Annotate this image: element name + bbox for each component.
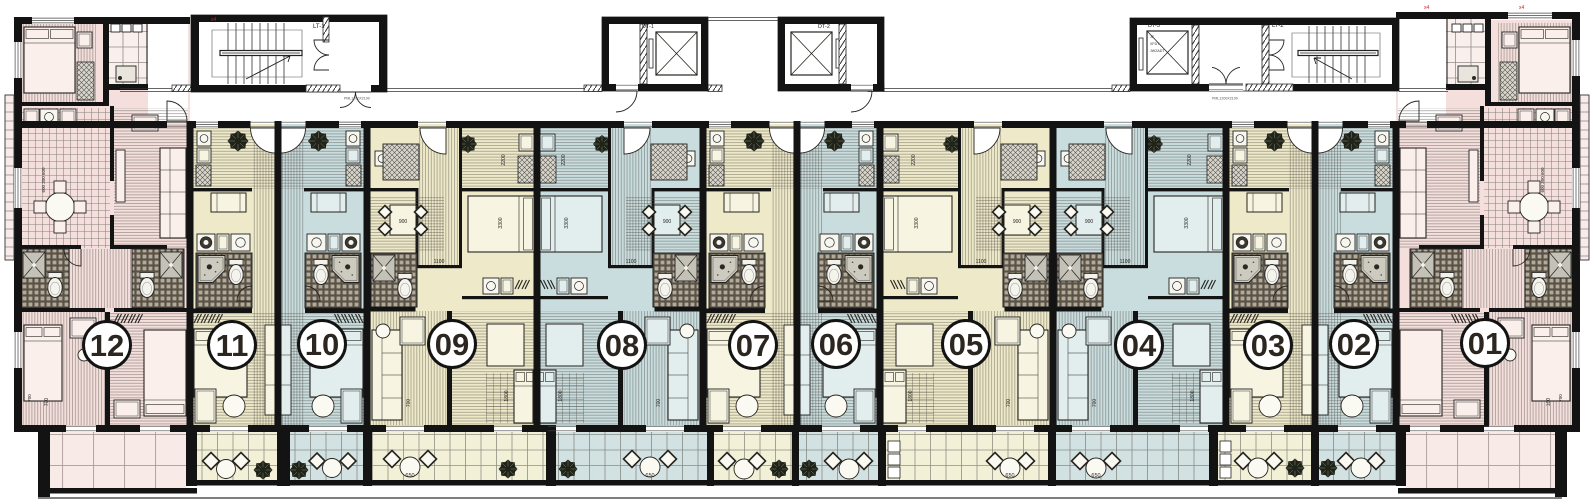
svg-text:650: 650: [1005, 473, 1014, 479]
svg-text:1100: 1100: [976, 259, 987, 265]
svg-text:LT-1: LT-1: [313, 24, 325, 30]
svg-text:x4: x4: [211, 17, 217, 23]
svg-text:1100: 1100: [626, 259, 637, 265]
svg-text:10: 10: [305, 327, 339, 362]
svg-text:DT-1: DT-1: [642, 24, 654, 30]
svg-text:1800: 1800: [1190, 390, 1196, 401]
svg-text:2200: 2200: [911, 154, 917, 165]
svg-text:x4: x4: [1519, 5, 1525, 11]
svg-text:XFDT: XFDT: [1150, 42, 1160, 46]
svg-text:700: 700: [27, 394, 32, 402]
svg-text:JWZADT: JWZADT: [1150, 49, 1165, 53]
svg-text:LT-2: LT-2: [1272, 23, 1284, 29]
svg-text:1800: 1800: [558, 390, 564, 401]
svg-text:3300: 3300: [498, 217, 504, 228]
svg-text:PML1200X2100: PML1200X2100: [1212, 97, 1238, 101]
svg-text:650: 650: [1091, 473, 1100, 479]
svg-text:700: 700: [1544, 398, 1550, 407]
svg-text:900: 900: [1085, 219, 1094, 225]
svg-text:05: 05: [949, 327, 983, 362]
svg-text:DT-2: DT-2: [818, 24, 830, 30]
svg-text:1100: 1100: [434, 259, 445, 265]
svg-text:700: 700: [1558, 394, 1563, 402]
svg-text:1800: 1800: [504, 390, 510, 401]
svg-text:700: 700: [1092, 399, 1098, 408]
svg-text:01: 01: [1468, 326, 1502, 361]
svg-text:x4: x4: [1424, 5, 1430, 11]
svg-text:02: 02: [1337, 327, 1371, 362]
svg-text:700: 700: [406, 399, 412, 408]
svg-text:900: 900: [1013, 219, 1022, 225]
svg-text:3300: 3300: [914, 217, 920, 228]
svg-text:900: 900: [663, 219, 672, 225]
svg-text:600 300 600: 600 300 600: [41, 167, 46, 193]
svg-text:700: 700: [44, 398, 50, 407]
svg-text:06: 06: [819, 327, 853, 362]
svg-text:1100: 1100: [1120, 259, 1131, 265]
svg-text:600 300 600: 600 300 600: [1540, 167, 1545, 193]
svg-text:650: 650: [405, 473, 414, 479]
svg-text:650: 650: [645, 473, 654, 479]
svg-text:700: 700: [656, 399, 662, 408]
svg-text:04: 04: [1122, 328, 1157, 363]
svg-text:07: 07: [736, 328, 770, 363]
svg-text:09: 09: [435, 327, 469, 362]
svg-text:12: 12: [90, 328, 124, 363]
svg-text:PML1200X2100: PML1200X2100: [344, 97, 370, 101]
svg-text:11: 11: [216, 328, 249, 363]
svg-text:700: 700: [1006, 399, 1012, 408]
svg-text:08: 08: [605, 328, 639, 363]
svg-text:03: 03: [1251, 328, 1285, 363]
svg-text:2200: 2200: [501, 154, 507, 165]
svg-text:1800: 1800: [908, 390, 914, 401]
svg-text:3300: 3300: [1184, 217, 1190, 228]
svg-text:3300: 3300: [564, 217, 570, 228]
svg-text:2200: 2200: [561, 154, 567, 165]
svg-text:900: 900: [399, 219, 408, 225]
svg-text:2200: 2200: [1187, 154, 1193, 165]
